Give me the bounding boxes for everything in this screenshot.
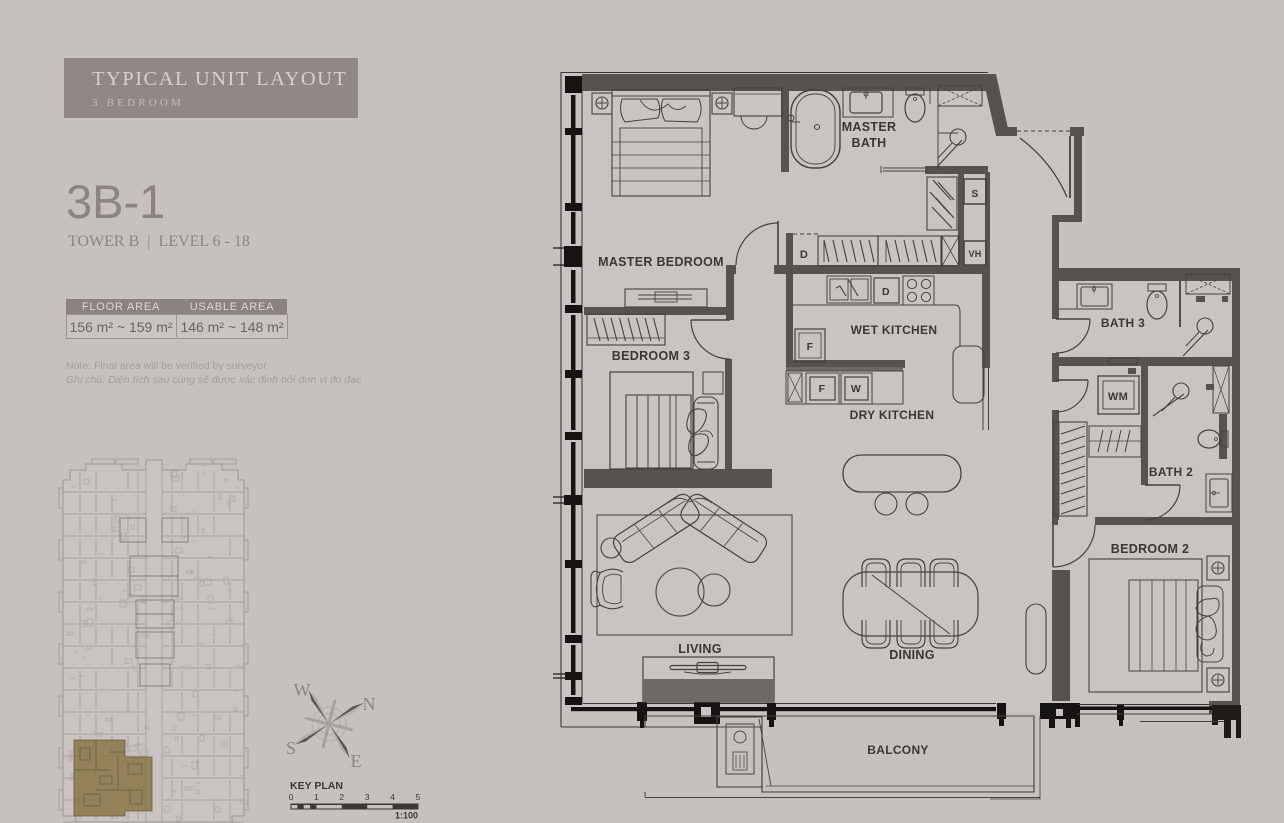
svg-text:2: 2 [339,792,344,802]
svg-text:DRY KITCHEN: DRY KITCHEN [850,408,935,422]
svg-text:MASTER: MASTER [842,120,897,134]
svg-text:LIVING: LIVING [678,642,721,656]
svg-text:VH: VH [968,249,981,259]
svg-text:BATH 3: BATH 3 [1101,316,1145,330]
svg-text:E: E [351,751,362,771]
svg-text:WET KITCHEN: WET KITCHEN [851,323,938,337]
svg-text:D: D [800,249,808,261]
svg-text:1:100: 1:100 [395,811,418,821]
svg-text:BATH: BATH [852,136,887,150]
svg-text:F: F [819,383,826,395]
svg-text:BEDROOM 3: BEDROOM 3 [612,349,690,363]
svg-text:F: F [807,341,814,353]
svg-text:N: N [363,694,376,714]
svg-text:DINING: DINING [889,648,935,662]
svg-text:1: 1 [314,792,319,802]
svg-text:KEY PLAN: KEY PLAN [290,780,343,792]
svg-text:0: 0 [289,792,294,802]
svg-text:BALCONY: BALCONY [867,743,928,757]
svg-text:W: W [851,383,861,395]
svg-text:S: S [286,738,296,758]
svg-text:BATH 2: BATH 2 [1149,465,1193,479]
svg-text:BEDROOM 2: BEDROOM 2 [1111,542,1189,556]
svg-text:W: W [294,680,311,700]
svg-text:S: S [971,188,978,200]
svg-text:4: 4 [390,792,395,802]
svg-text:WM: WM [1108,391,1128,403]
svg-text:MASTER BEDROOM: MASTER BEDROOM [598,255,724,269]
svg-text:3: 3 [365,792,370,802]
svg-text:D: D [882,286,890,298]
svg-text:5: 5 [416,792,421,802]
